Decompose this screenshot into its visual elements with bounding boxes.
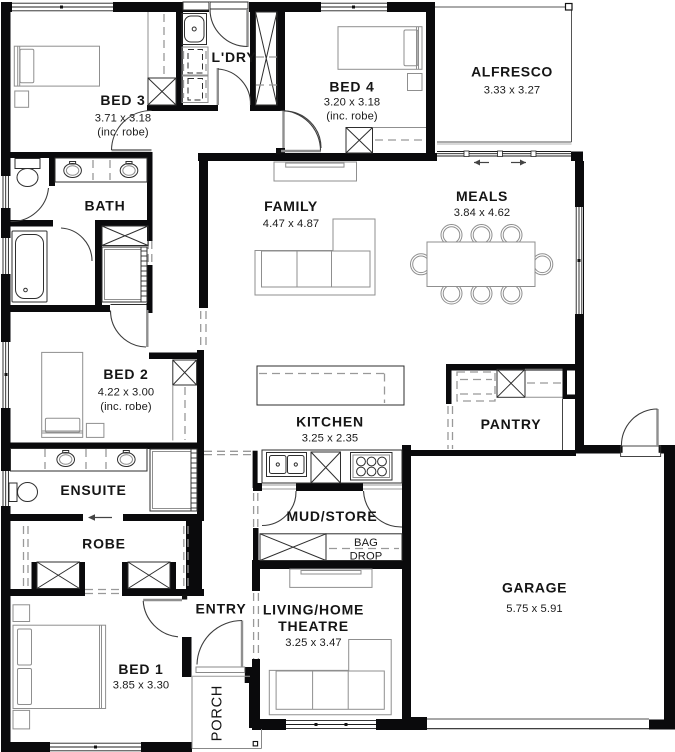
svg-text:THEATRE: THEATRE xyxy=(278,618,349,634)
svg-text:KITCHEN: KITCHEN xyxy=(296,414,364,430)
svg-text:BAG: BAG xyxy=(354,537,378,549)
svg-text:FAMILY: FAMILY xyxy=(264,198,318,214)
svg-text:3.20 x 3.18: 3.20 x 3.18 xyxy=(324,97,380,109)
svg-text:BED 1: BED 1 xyxy=(118,661,163,677)
svg-text:PANTRY: PANTRY xyxy=(481,416,542,432)
svg-text:3.25 x 3.47: 3.25 x 3.47 xyxy=(285,637,341,649)
svg-text:3.25 x 2.35: 3.25 x 2.35 xyxy=(302,433,358,445)
svg-text:3.71 x 3.18: 3.71 x 3.18 xyxy=(95,113,151,125)
svg-text:4.22 x 3.00: 4.22 x 3.00 xyxy=(98,387,154,399)
svg-text:(inc. robe): (inc. robe) xyxy=(97,127,149,139)
svg-text:ENSUITE: ENSUITE xyxy=(60,482,126,498)
svg-text:5.75 x 5.91: 5.75 x 5.91 xyxy=(506,603,562,615)
svg-text:4.47 x 4.87: 4.47 x 4.87 xyxy=(263,218,319,230)
svg-text:ALFRESCO: ALFRESCO xyxy=(471,64,553,80)
svg-text:BED 4: BED 4 xyxy=(329,79,374,95)
svg-text:BATH: BATH xyxy=(84,198,125,214)
svg-text:L'DRY: L'DRY xyxy=(212,49,257,65)
svg-text:(inc. robe): (inc. robe) xyxy=(100,401,152,413)
svg-text:BED 2: BED 2 xyxy=(103,366,148,382)
svg-text:3.85 x 3.30: 3.85 x 3.30 xyxy=(113,680,169,692)
svg-text:MEALS: MEALS xyxy=(456,188,508,204)
svg-text:3.33 x 3.27: 3.33 x 3.27 xyxy=(484,85,540,97)
svg-text:BED 3: BED 3 xyxy=(100,92,145,108)
svg-text:MUD/STORE: MUD/STORE xyxy=(287,508,378,524)
svg-text:ROBE: ROBE xyxy=(82,536,126,552)
svg-text:LIVING/HOME: LIVING/HOME xyxy=(263,602,364,618)
svg-text:3.84 x 4.62: 3.84 x 4.62 xyxy=(454,207,510,219)
svg-text:GARAGE: GARAGE xyxy=(502,580,567,596)
svg-text:PORCH: PORCH xyxy=(210,685,226,741)
svg-text:(inc. robe): (inc. robe) xyxy=(326,111,378,123)
svg-text:ENTRY: ENTRY xyxy=(196,601,247,617)
svg-text:DROP: DROP xyxy=(350,551,383,563)
